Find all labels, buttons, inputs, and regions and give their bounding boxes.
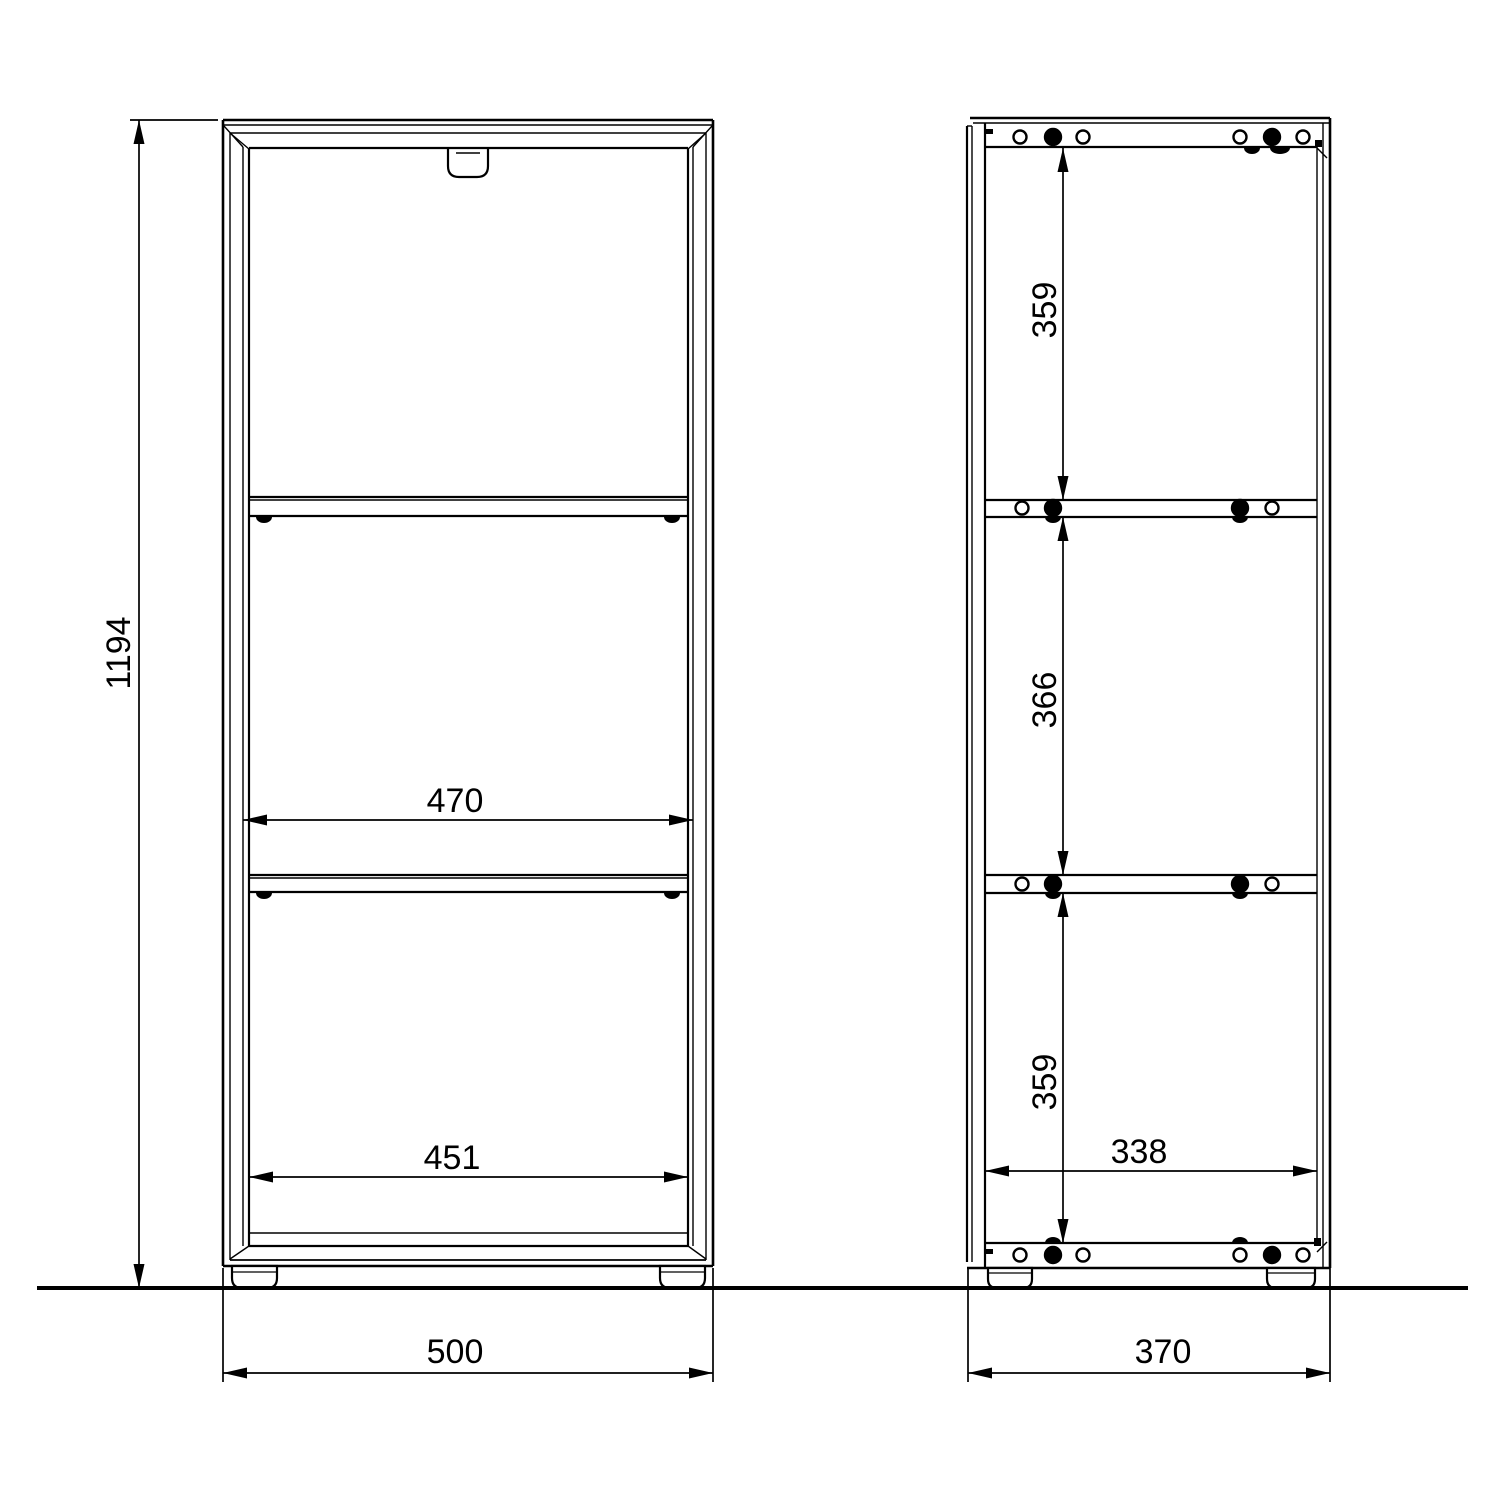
front-view-carcass — [223, 120, 713, 1266]
front-view-doors — [249, 148, 688, 1246]
hinge-marks — [256, 517, 680, 899]
technical-drawing-canvas: 1194 470 451 500 359 366 359 338 370 — [0, 0, 1500, 1500]
front-feet — [232, 1266, 705, 1288]
dim-label-overall-depth: 370 — [1135, 1333, 1192, 1371]
side-feet — [988, 1268, 1315, 1288]
dim-label-bottom-compartment: 359 — [1026, 1054, 1064, 1111]
dim-label-door-width: 451 — [424, 1139, 481, 1177]
front-view — [223, 120, 713, 1288]
dim-label-inner-depth: 338 — [1111, 1133, 1168, 1171]
dim-label-overall-height: 1194 — [100, 616, 138, 689]
dim-label-top-compartment: 359 — [1026, 282, 1064, 339]
side-view-carcass — [967, 118, 1330, 1268]
dim-label-overall-width: 500 — [427, 1333, 484, 1371]
side-door-panel — [967, 126, 972, 1262]
dim-label-inner-width: 470 — [427, 782, 484, 820]
dim-overall-height — [130, 120, 218, 1288]
dim-label-middle-compartment: 366 — [1026, 672, 1064, 729]
side-view — [967, 118, 1330, 1288]
handle-cutout — [448, 149, 488, 177]
